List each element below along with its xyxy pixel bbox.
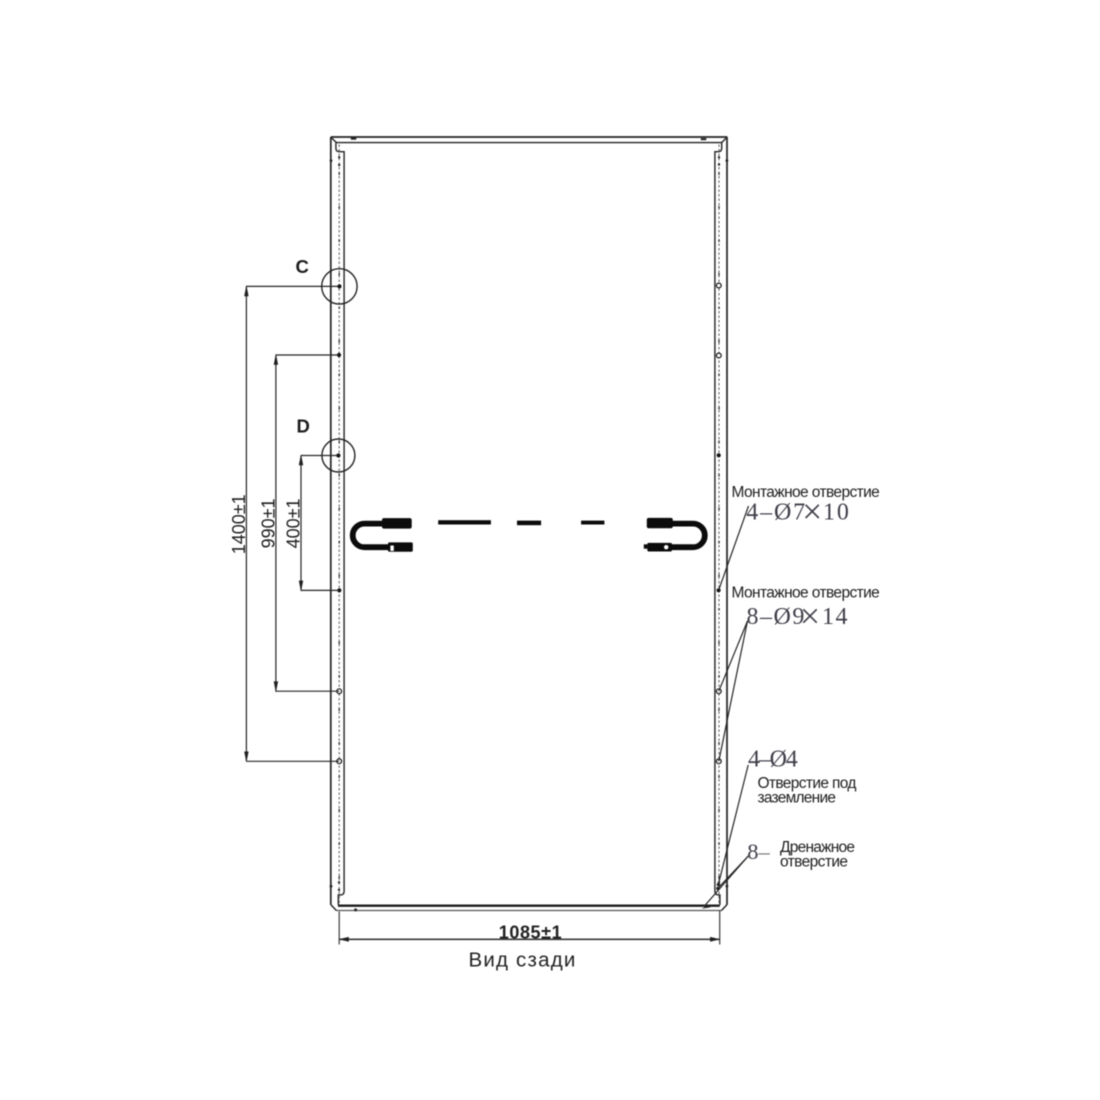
svg-text:4–Ø4: 4–Ø4	[748, 747, 798, 773]
svg-text:Вид сзади: Вид сзади	[468, 949, 576, 972]
svg-text:8–: 8–	[747, 839, 770, 864]
svg-text:заземление: заземление	[758, 789, 836, 806]
svg-text:отверстие: отверстие	[780, 854, 847, 871]
svg-text:10: 10	[823, 499, 851, 525]
svg-text:4–Ø7: 4–Ø7	[746, 499, 807, 525]
svg-text:1085±1: 1085±1	[499, 922, 563, 942]
svg-text:Монтажное отверстие: Монтажное отверстие	[732, 584, 880, 601]
svg-text:14: 14	[822, 604, 849, 630]
svg-text:8–Ø9: 8–Ø9	[747, 604, 806, 630]
svg-text:C: C	[296, 256, 309, 277]
svg-text:990±1: 990±1	[258, 498, 278, 548]
svg-text:400±1: 400±1	[284, 498, 304, 548]
svg-text:1400±1: 1400±1	[229, 494, 249, 554]
svg-text:D: D	[297, 415, 310, 436]
